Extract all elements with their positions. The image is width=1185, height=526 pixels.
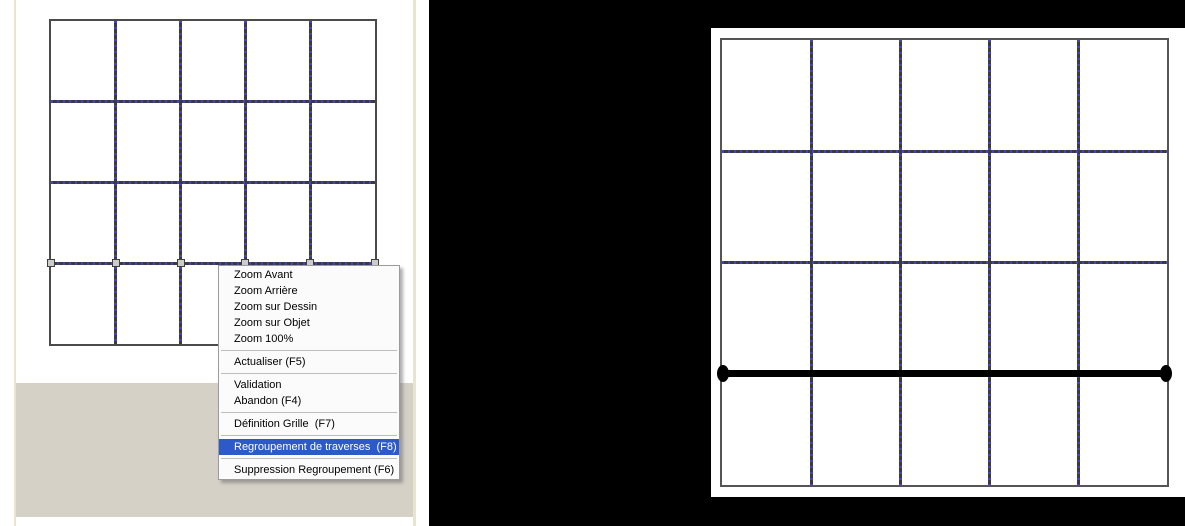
grid-horizontal-line: [722, 261, 1167, 264]
left-canvas-view[interactable]: Zoom AvantZoom ArrièreZoom sur DessinZoo…: [0, 0, 429, 526]
right-canvas-view[interactable]: [711, 28, 1185, 497]
menu-item-zoom-avant[interactable]: Zoom Avant: [219, 267, 399, 283]
grid-horizontal-line: [51, 100, 375, 103]
traverse-endpoint-left[interactable]: [717, 365, 729, 382]
grid-horizontal-line: [722, 150, 1167, 153]
menu-separator: [219, 455, 399, 462]
selection-handle[interactable]: [112, 259, 120, 267]
selection-handle[interactable]: [177, 259, 185, 267]
menu-separator: [219, 432, 399, 439]
traverse-endpoint-right[interactable]: [1160, 365, 1172, 382]
menu-item-abandon-f4[interactable]: Abandon (F4): [219, 393, 399, 409]
menu-item-zoom-arriere[interactable]: Zoom Arrière: [219, 283, 399, 299]
context-menu: Zoom AvantZoom ArrièreZoom sur DessinZoo…: [218, 265, 400, 480]
menu-item-suppression-regroupement-f6[interactable]: Suppression Regroupement (F6): [219, 462, 399, 478]
grid-horizontal-line: [51, 181, 375, 184]
selection-handle[interactable]: [47, 259, 55, 267]
menu-separator: [219, 370, 399, 377]
menu-item-actualiser-f5[interactable]: Actualiser (F5): [219, 354, 399, 370]
menu-item-zoom-100[interactable]: Zoom 100%: [219, 331, 399, 347]
grouped-traverse-line[interactable]: [719, 370, 1170, 377]
menu-separator: [219, 347, 399, 354]
menu-item-definition-grille-f7[interactable]: Définition Grille (F7): [219, 416, 399, 432]
menu-item-zoom-sur-objet[interactable]: Zoom sur Objet: [219, 315, 399, 331]
screenshot-stage: Zoom AvantZoom ArrièreZoom sur DessinZoo…: [0, 0, 1185, 526]
result-grid[interactable]: [720, 38, 1169, 487]
canvas-frame-right-edge: [413, 0, 416, 526]
menu-item-validation[interactable]: Validation: [219, 377, 399, 393]
menu-separator: [219, 409, 399, 416]
menu-item-regroupement-de-traverses-f8[interactable]: Regroupement de traverses (F8): [219, 439, 399, 455]
menu-item-zoom-sur-dessin[interactable]: Zoom sur Dessin: [219, 299, 399, 315]
